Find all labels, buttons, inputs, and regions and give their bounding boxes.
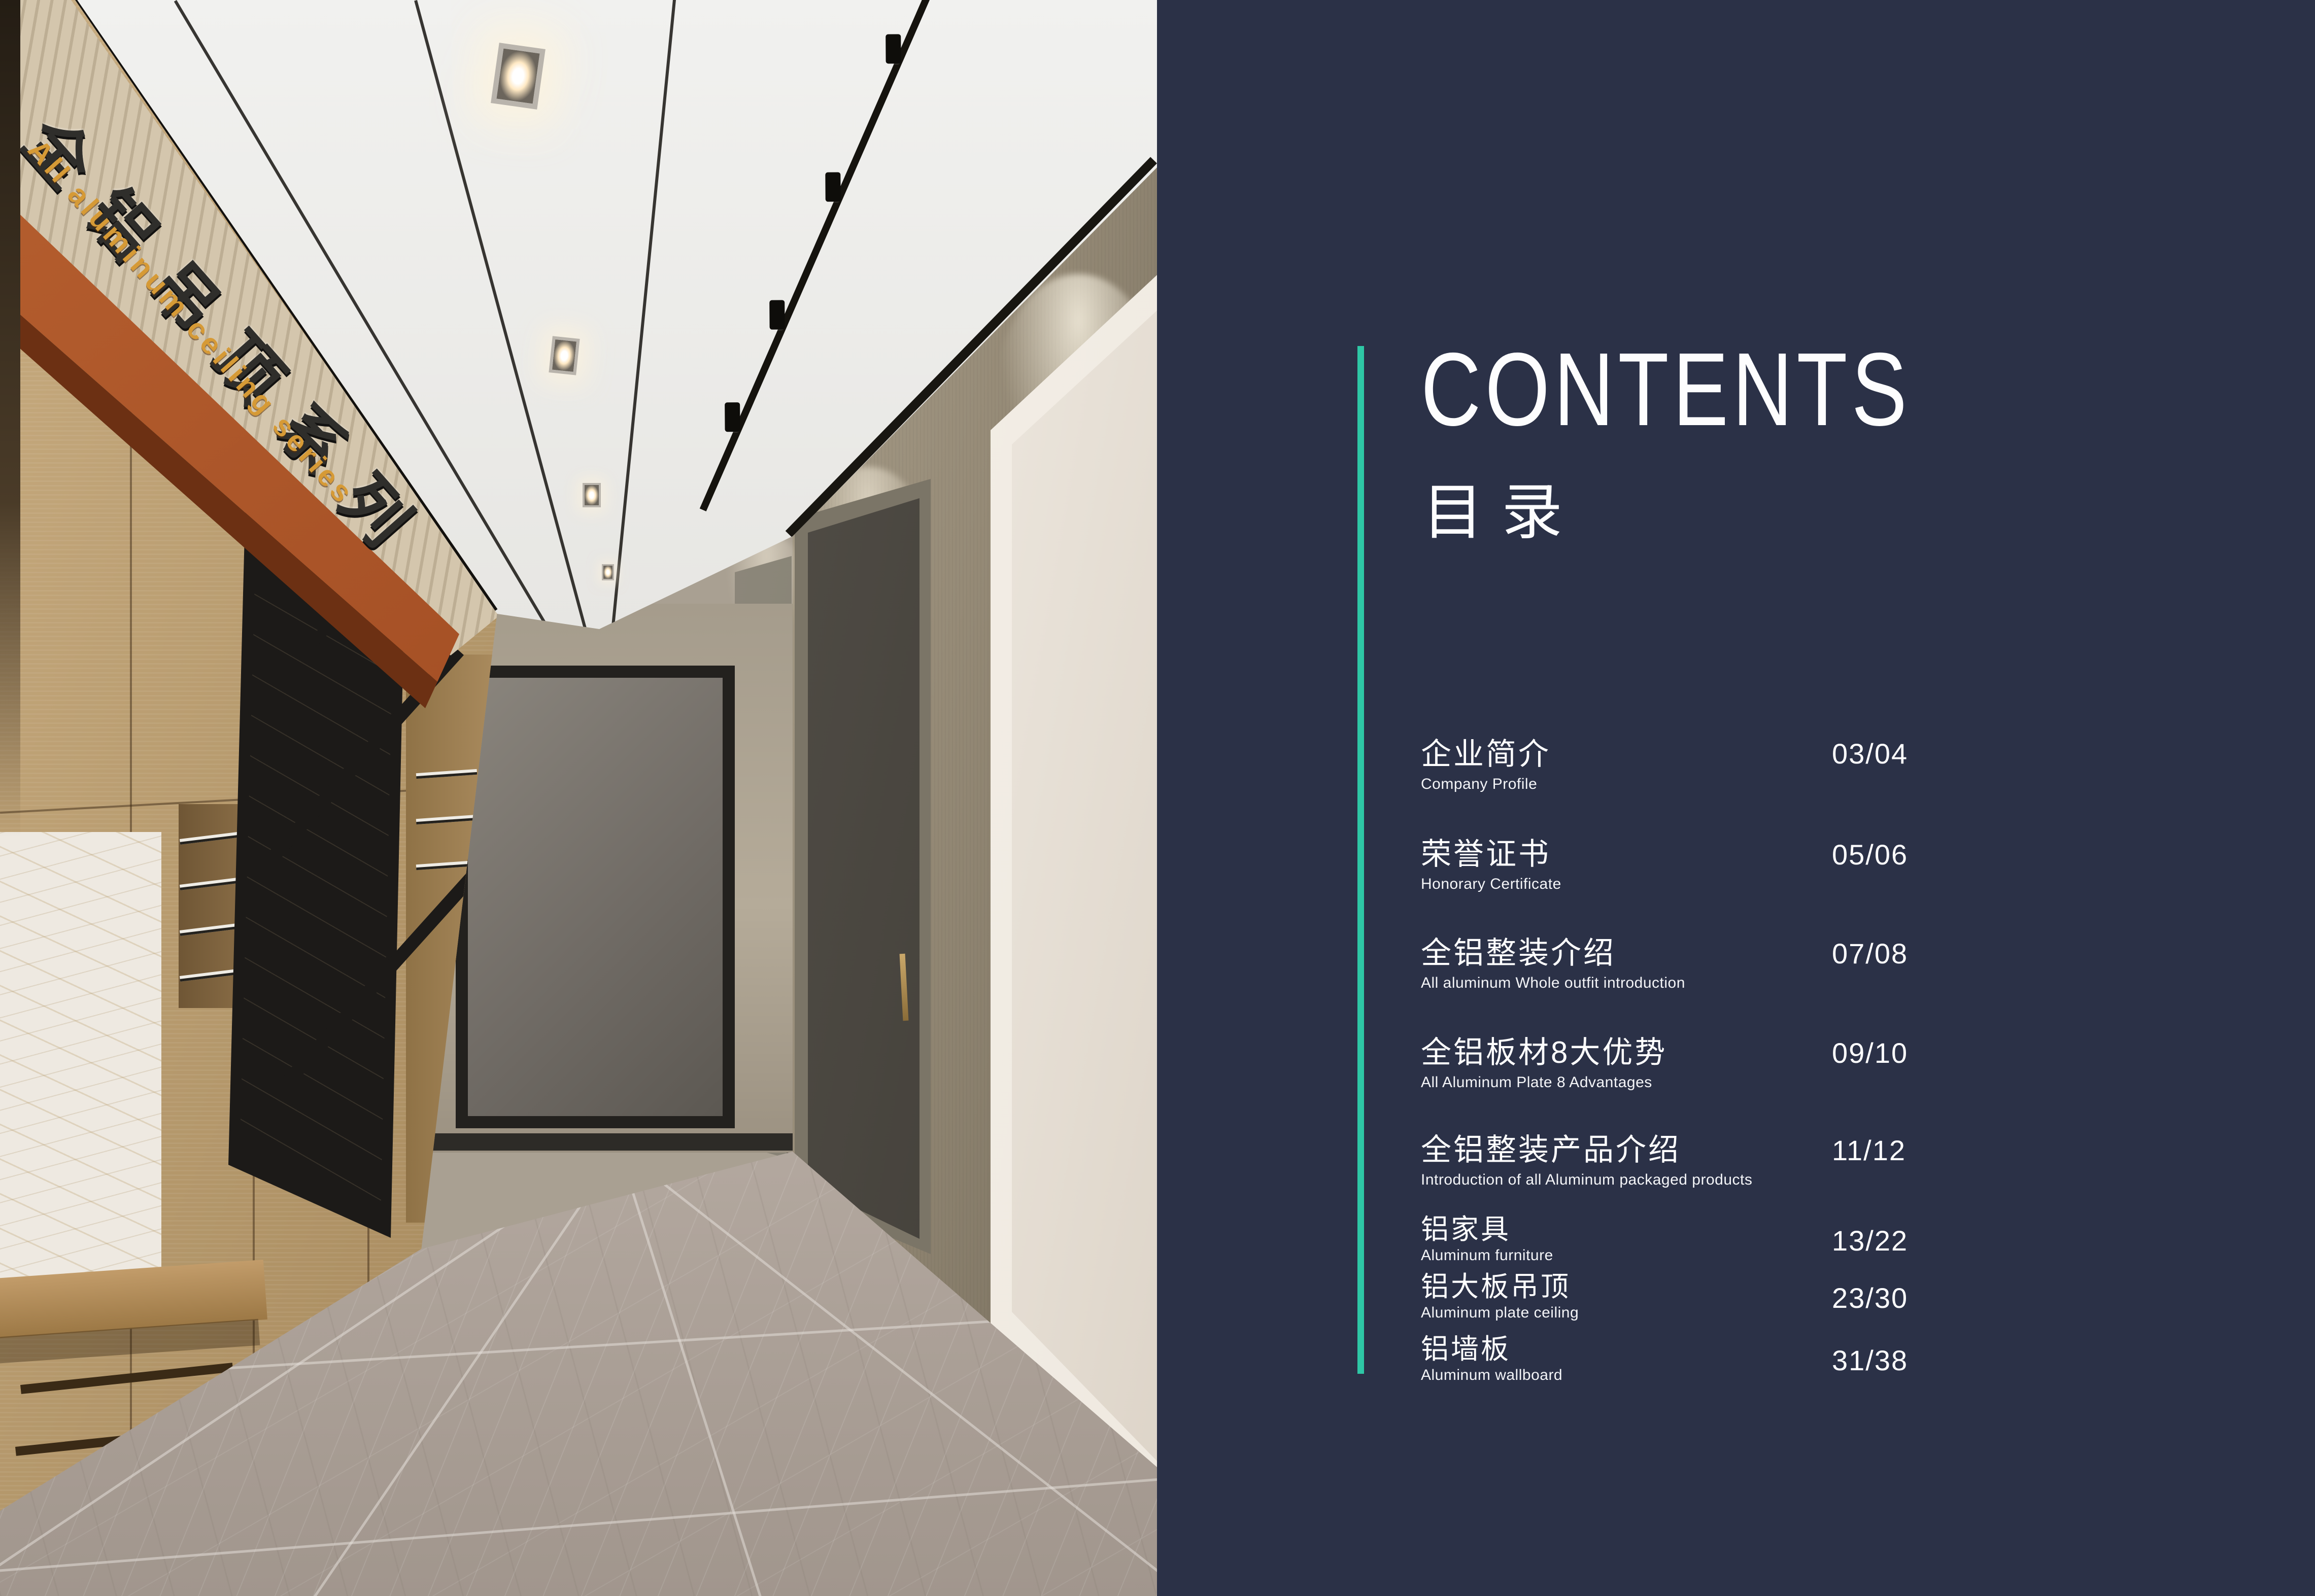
toc-item[interactable]: 铝墙板 Aluminum wallboard 31/38 xyxy=(1421,1335,1918,1384)
toc-item-pages: 05/06 xyxy=(1832,838,1908,871)
toc-item-pages: 09/10 xyxy=(1832,1036,1908,1069)
track-spotlight xyxy=(825,172,840,201)
toc-item-pages: 11/12 xyxy=(1832,1134,1906,1167)
toc-item-pages: 03/04 xyxy=(1832,737,1908,770)
toc-list: 企业简介 Company Profile 03/04 荣誉证书 Honorary… xyxy=(1421,738,1918,1413)
toc-item[interactable]: 全铝整装产品介绍 Introduction of all Aluminum pa… xyxy=(1421,1134,1918,1189)
recessed-light xyxy=(602,564,614,580)
end-baseboard xyxy=(421,1133,793,1151)
toc-item-subtitle-en: All Aluminum Plate 8 Advantages xyxy=(1421,1074,1918,1091)
corridor-photo: 全铝吊顶系列 All aluminum ceiling series xyxy=(0,0,1157,1596)
brochure-contents-page: 全铝吊顶系列 All aluminum ceiling series xyxy=(0,0,2315,1596)
recessed-light xyxy=(549,336,580,375)
toc-item-pages: 23/30 xyxy=(1832,1281,1908,1314)
toc-item[interactable]: 全铝整装介绍 All aluminum Whole outfit introdu… xyxy=(1421,937,1918,992)
contents-panel: CONTENTS 目录 企业简介 Company Profile 03/04 荣… xyxy=(1157,0,2315,1596)
shelf xyxy=(416,769,477,779)
toc-item-subtitle-en: Introduction of all Aluminum packaged pr… xyxy=(1421,1171,1918,1189)
toc-item-subtitle-en: All aluminum Whole outfit introduction xyxy=(1421,975,1918,992)
end-display-panel xyxy=(468,678,723,1116)
tile-seam xyxy=(0,1477,1157,1573)
tile-seam xyxy=(618,1149,763,1596)
track-spotlight xyxy=(725,402,740,432)
toc-item[interactable]: 全铝板材8大优势 All Aluminum Plate 8 Advantages… xyxy=(1421,1036,1918,1091)
recessed-light xyxy=(491,43,546,110)
photo-edge-shadow xyxy=(0,0,20,837)
page-title: CONTENTS xyxy=(1421,330,1911,449)
ceiling-seam xyxy=(611,0,676,630)
toc-item[interactable]: 铝家具 Aluminum furniture 13/22 xyxy=(1421,1215,1918,1264)
marble-niche-panel xyxy=(0,832,161,1299)
toc-item-subtitle-en: Company Profile xyxy=(1421,776,1918,793)
track-spotlight xyxy=(769,300,785,329)
recessed-light xyxy=(583,483,601,507)
toc-item[interactable]: 荣誉证书 Honorary Certificate 05/06 xyxy=(1421,838,1918,893)
toc-item[interactable]: 企业简介 Company Profile 03/04 xyxy=(1421,738,1918,793)
toc-item-pages: 31/38 xyxy=(1832,1344,1908,1377)
toc-item[interactable]: 铝大板吊顶 Aluminum plate ceiling 23/30 xyxy=(1421,1272,1918,1322)
toc-item-subtitle-en: Honorary Certificate xyxy=(1421,876,1918,893)
toc-item-pages: 13/22 xyxy=(1832,1224,1908,1257)
accent-line xyxy=(1357,346,1364,1374)
track-spotlight xyxy=(886,34,901,63)
toc-item-pages: 07/08 xyxy=(1832,937,1908,970)
shelf xyxy=(416,815,477,824)
page-title-zh: 目录 xyxy=(1422,463,1581,551)
